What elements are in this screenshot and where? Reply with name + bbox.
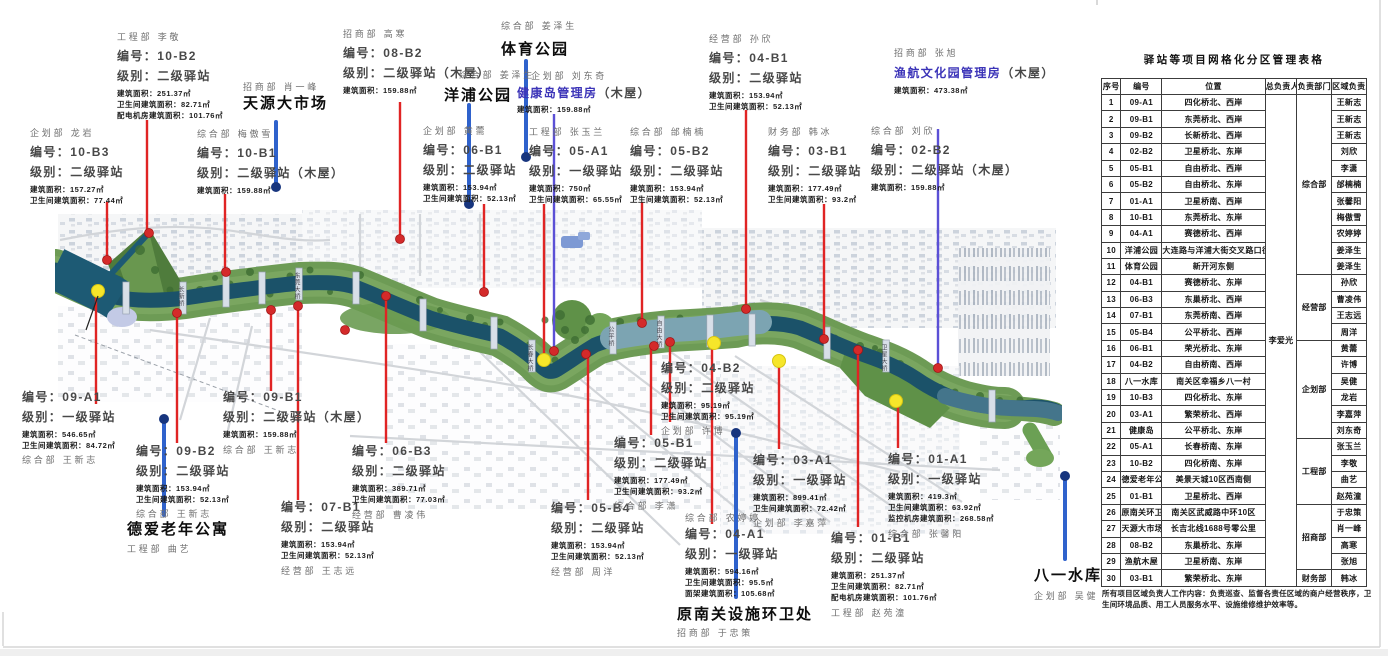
svg-text:长春大桥: 长春大桥 (526, 343, 533, 372)
svg-text:公平桥: 公平桥 (607, 326, 614, 347)
svg-text:长新桥: 长新桥 (177, 285, 184, 307)
svg-text:卫星大桥: 卫星大桥 (880, 344, 887, 372)
svg-text:东莞大桥: 东莞大桥 (293, 271, 300, 300)
